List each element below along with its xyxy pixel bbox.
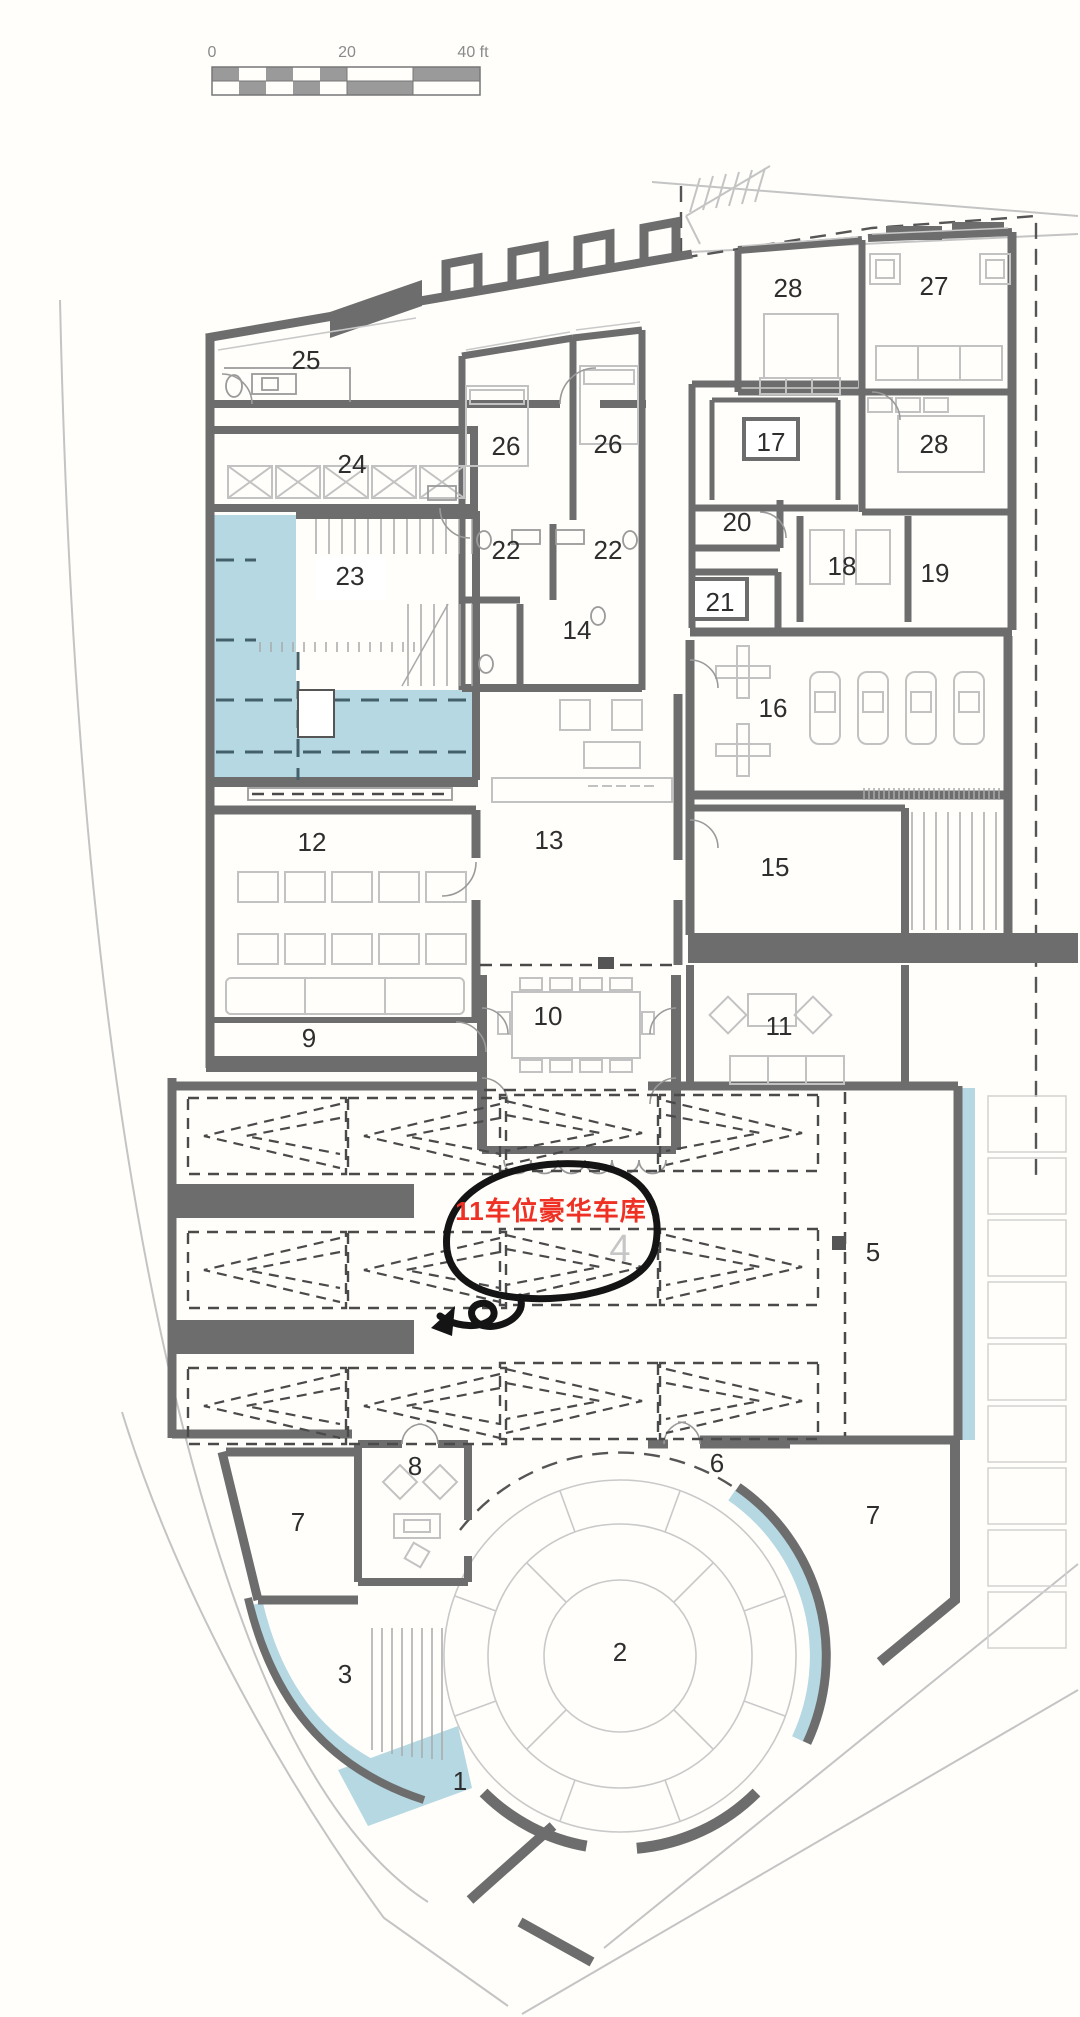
room-number-label: 5 [866,1237,880,1267]
room-number-label: 15 [761,852,790,882]
foyer-highlight [214,690,476,782]
court-dashed-edge [460,1453,780,1530]
stair-lobby-highlight [214,515,296,690]
room-number-label: 6 [710,1448,724,1478]
room-number-label: 1 [453,1766,467,1796]
stair-east [912,812,996,930]
room-number-label: 14 [563,615,592,645]
room-number-label: 21 [706,587,735,617]
room-labels-layer: 2524232626222214282728172021181916121315… [291,271,950,1796]
scale-tick-0: 0 [208,44,217,61]
room-number-label: 28 [774,273,803,303]
scale-tick-20: 20 [338,44,356,61]
room-number-label: 26 [492,431,521,461]
room-number-label: 11 [766,1011,793,1041]
room-number-label: 19 [921,558,950,588]
room-number-label: 23 [336,561,365,591]
east-terrace-steps [988,1096,1066,1648]
room-number-label: 20 [723,507,752,537]
area-number-label: 4 [609,1228,630,1270]
room-number-label: 10 [534,1001,563,1031]
room-number-label: 12 [298,827,327,857]
column-marker [832,1236,846,1250]
room-number-label: 9 [302,1023,316,1053]
room-number-label: 8 [408,1451,422,1481]
floor-plan-drawing: 0 20 40 ft 11车位豪华车库 25242326262222142827… [0,0,1080,2017]
room-number-label: 27 [920,271,949,301]
room-number-label: 17 [757,427,786,457]
callout-arrowhead [431,1306,455,1336]
room-number-label: 16 [759,693,788,723]
property-line [656,186,1036,1176]
parking-spaces [188,1092,846,1444]
room-number-label: 22 [492,535,521,565]
scale-tick-40ft: 40 ft [457,44,489,61]
room-number-label: 22 [594,535,623,565]
room-number-label: 2 [613,1637,627,1667]
room-number-label: 7 [866,1500,880,1530]
floor-plan-page: 0 20 40 ft 11车位豪华车库 25242326262222142827… [0,0,1080,2017]
room-number-label: 24 [338,449,367,479]
room-number-label: 13 [535,825,564,855]
stair-room3 [372,1628,442,1760]
stair-23 [316,519,472,686]
scale-bar: 0 20 40 ft [208,44,490,95]
room-number-label: 25 [292,345,321,375]
room-number-label: 28 [920,429,949,459]
room-number-label: 18 [828,551,857,581]
room-number-label: 26 [594,429,623,459]
room-number-label: 3 [338,1659,352,1689]
annotation-text: 11车位豪华车库 [455,1196,647,1226]
room-number-label: 7 [291,1507,305,1537]
east-water-strip [961,1088,975,1440]
walls [172,222,1078,1962]
